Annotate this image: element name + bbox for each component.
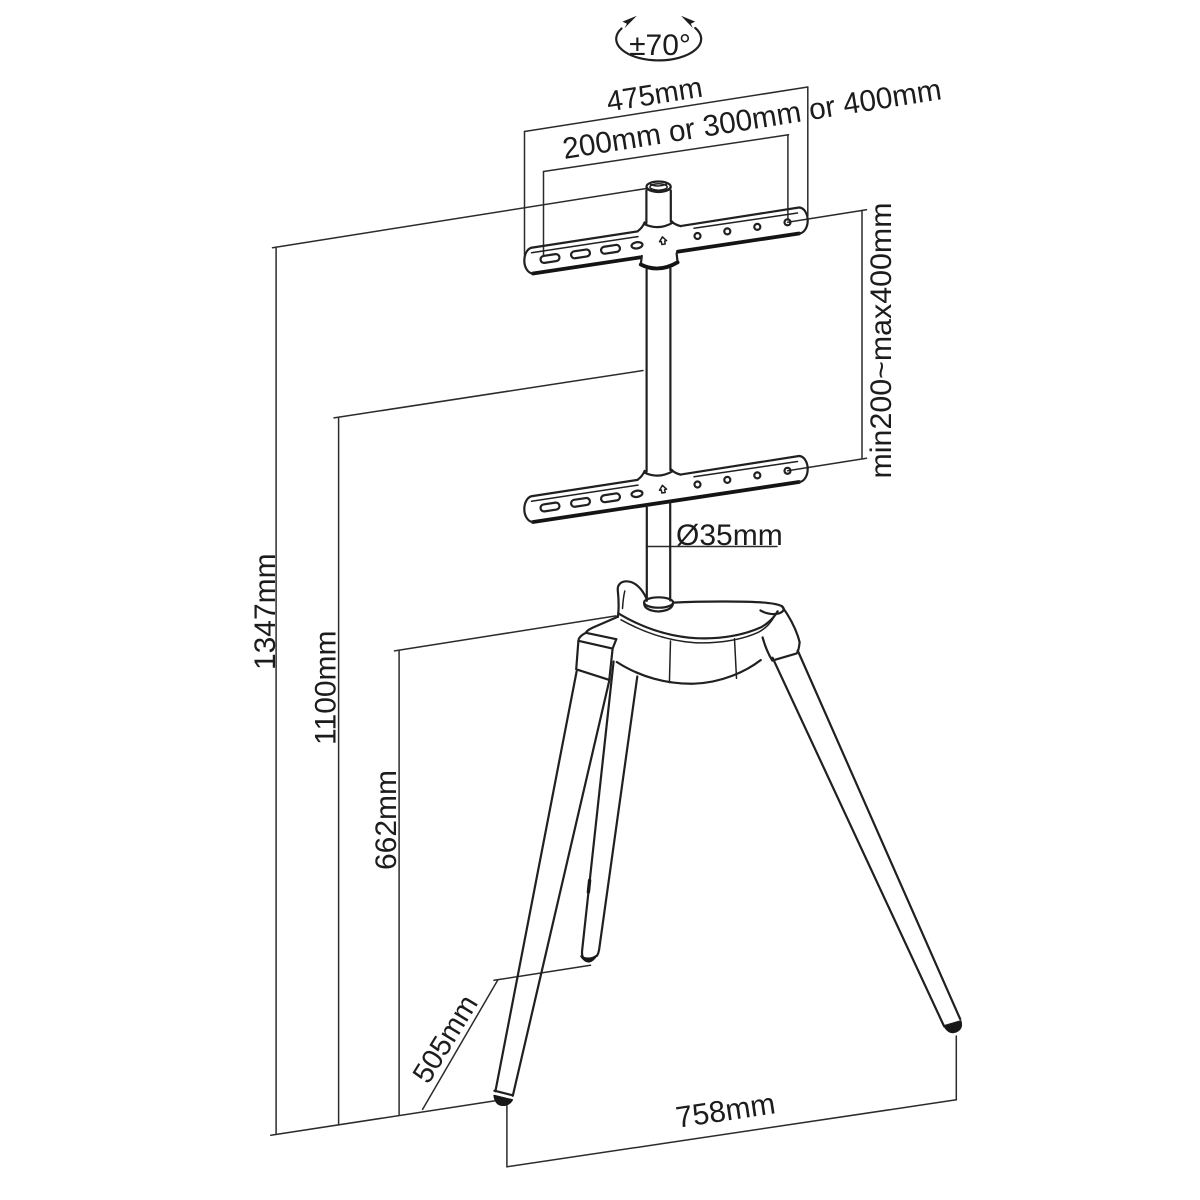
svg-text:min200~max400mm: min200~max400mm bbox=[865, 203, 898, 479]
svg-text:±70°: ±70° bbox=[629, 29, 691, 62]
svg-text:662mm: 662mm bbox=[370, 770, 403, 870]
svg-text:1100mm: 1100mm bbox=[310, 630, 343, 745]
svg-text:1347mm: 1347mm bbox=[249, 553, 282, 670]
